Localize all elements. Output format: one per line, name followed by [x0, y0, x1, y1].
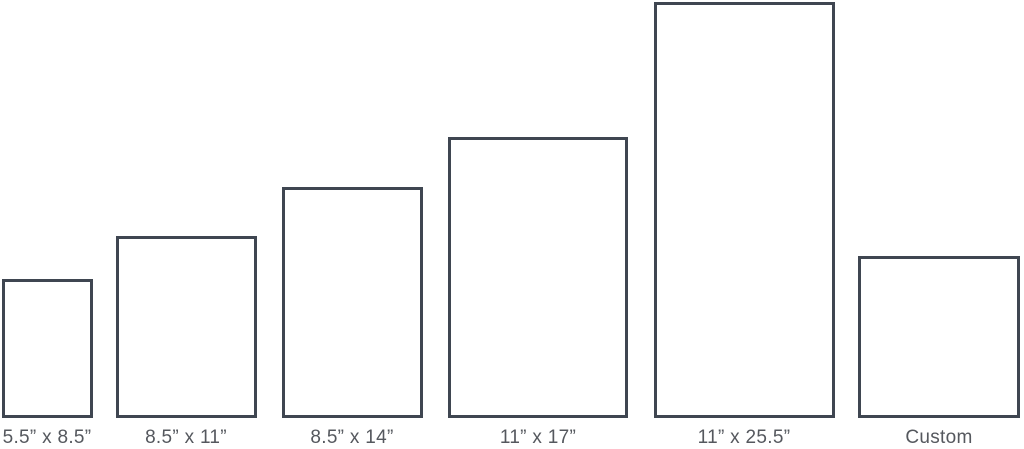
size-label-8.5x14: 8.5” x 14” [310, 428, 393, 447]
paper-rectangle-8.5x14 [282, 187, 423, 418]
size-label-8.5x11: 8.5” x 11” [145, 428, 227, 447]
size-label-5.5x8.5: 5.5” x 8.5” [3, 428, 92, 447]
paper-rectangle-custom [858, 256, 1020, 418]
size-label-11x25.5: 11” x 25.5” [698, 428, 791, 447]
paper-size-comparison-diagram: 5.5” x 8.5” 8.5” x 11” 8.5” x 14” 11” x … [0, 0, 1024, 449]
size-label-custom: Custom [905, 428, 972, 447]
paper-rectangle-11x17 [448, 137, 628, 418]
size-label-11x17: 11” x 17” [500, 428, 576, 447]
paper-rectangle-8.5x11 [116, 236, 257, 418]
paper-rectangle-5.5x8.5 [2, 279, 93, 418]
paper-rectangle-11x25.5 [654, 2, 835, 418]
